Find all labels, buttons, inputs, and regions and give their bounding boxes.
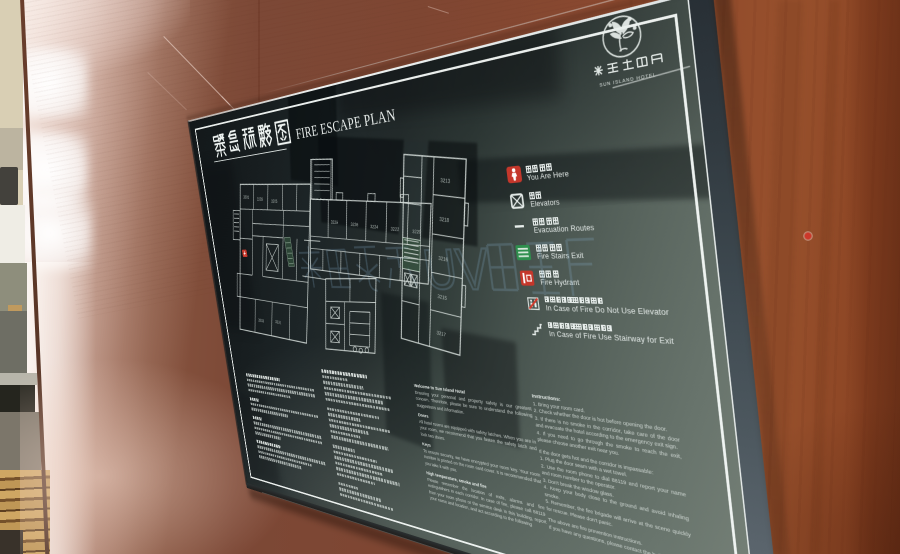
svg-text:3222: 3222: [391, 226, 400, 233]
svg-text:SUN ISLAND HOTEL: SUN ISLAND HOTEL: [599, 72, 658, 89]
svg-text:3220: 3220: [412, 228, 421, 235]
svg-text:3217: 3217: [436, 329, 446, 338]
svg-text:3233: 3233: [258, 318, 264, 324]
svg-text:3231: 3231: [275, 319, 281, 325]
svg-text:3203: 3203: [257, 197, 263, 202]
svg-text:3216: 3216: [438, 255, 448, 263]
svg-text:3205: 3205: [271, 199, 277, 205]
svg-text:3224: 3224: [370, 223, 378, 230]
svg-text:3201: 3201: [243, 195, 249, 200]
svg-text:3215: 3215: [437, 293, 447, 302]
svg-text:3213: 3213: [440, 177, 450, 185]
svg-text:3228: 3228: [331, 219, 339, 225]
svg-text:3218: 3218: [439, 216, 449, 224]
svg-text:3226: 3226: [351, 221, 359, 228]
